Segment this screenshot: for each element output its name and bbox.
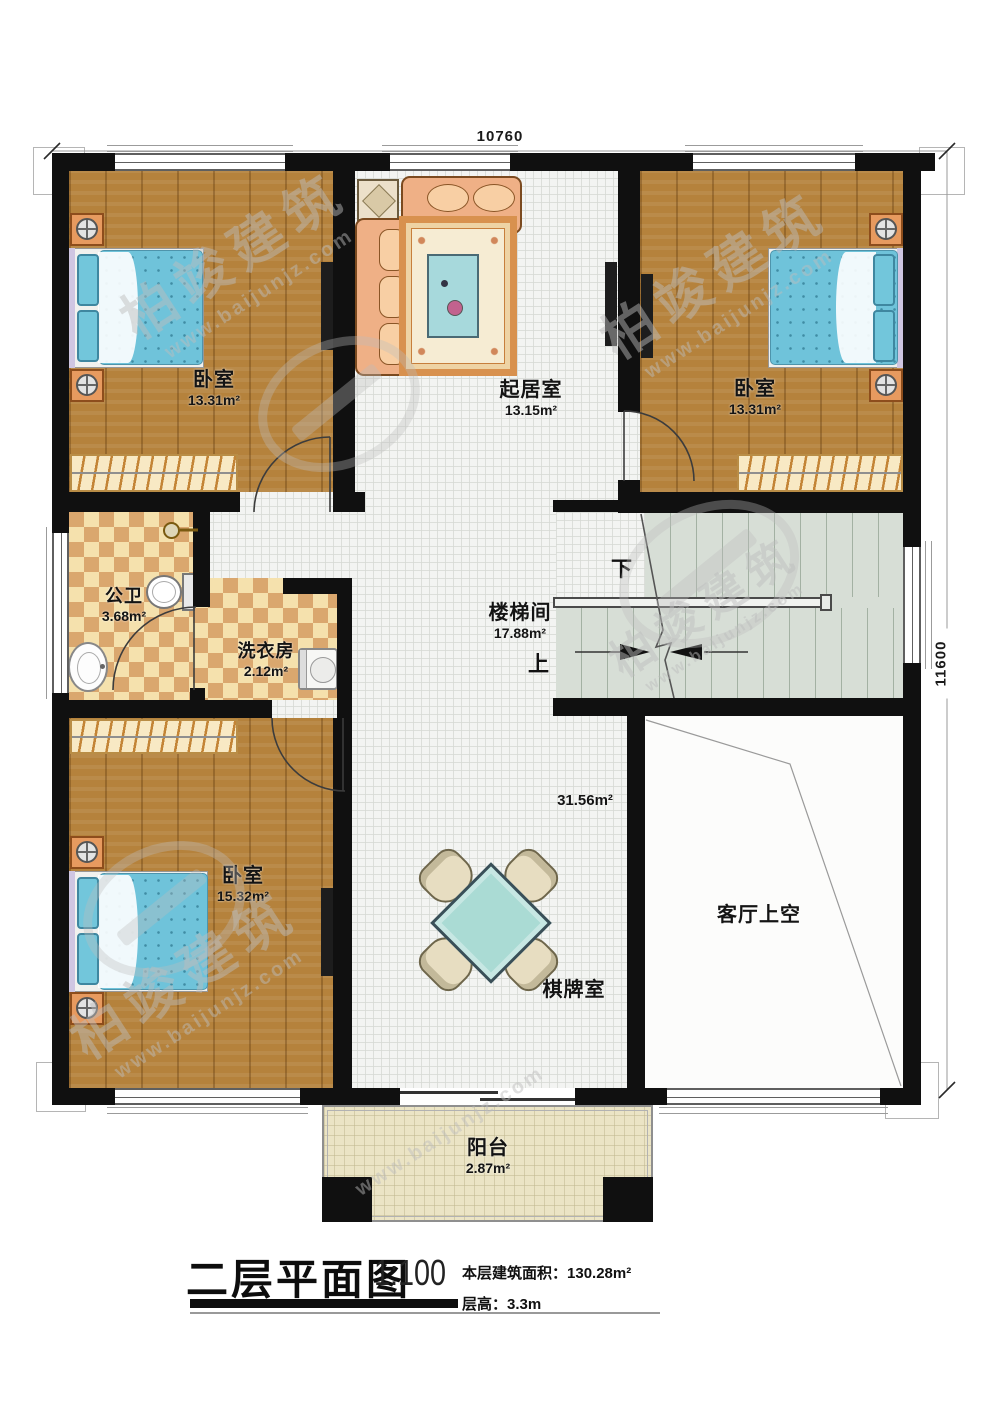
floor-area-value: 130.28m²: [567, 1265, 631, 1282]
room-label-game-room: 棋牌室: [514, 978, 634, 1002]
plant-stand-top: [362, 184, 396, 218]
table-flowers: [447, 300, 463, 316]
pillow: [77, 933, 99, 985]
pillow: [77, 310, 99, 362]
window-sill: [659, 1107, 888, 1114]
floor-plan-canvas: 卧室 13.31m² 起居室 13.15m² 卧室 13.31m² 公卫 3.6…: [0, 0, 1000, 1416]
wall: [333, 492, 365, 512]
stair-lower-flight: [556, 608, 903, 698]
room-name: 客厅上空: [699, 903, 819, 927]
lamp-icon: [875, 218, 897, 240]
room-area: 3.68m²: [64, 608, 184, 625]
room-name: 卧室: [154, 368, 274, 392]
floor-height-value: 3.3m: [507, 1296, 541, 1313]
window: [115, 153, 285, 171]
bed-blanket: [98, 252, 138, 363]
room-name: 卧室: [183, 864, 303, 888]
wall: [193, 512, 210, 607]
tv: [321, 262, 333, 350]
window: [903, 547, 921, 663]
pillow: [77, 877, 99, 929]
bed-blanket: [836, 252, 876, 363]
lamp-icon: [76, 374, 98, 396]
title-underline-bar: [190, 1299, 458, 1308]
room-label-bedroom-tl: 卧室 13.31m²: [154, 368, 274, 409]
window: [667, 1088, 880, 1105]
wall: [618, 170, 640, 412]
room-label-bedroom-tr: 卧室 13.31m²: [695, 377, 815, 418]
pillow: [873, 254, 895, 306]
window-sill: [925, 541, 932, 669]
game-room-area-label: 31.56m²: [525, 792, 645, 810]
wall: [69, 492, 240, 512]
room-name: 棋牌室: [514, 978, 634, 1002]
sink: [68, 642, 108, 692]
wall: [637, 492, 903, 513]
stair-upper-flight: [645, 512, 903, 597]
bed-headboard: [69, 871, 75, 992]
pillow: [77, 254, 99, 306]
tv: [321, 888, 333, 976]
tv: [641, 274, 653, 358]
sofa-cushion: [427, 184, 469, 212]
dimension-right: 11600: [933, 629, 950, 699]
dimension-top: 10760: [462, 128, 538, 145]
room-area: 2.12m²: [206, 663, 326, 680]
wall: [553, 500, 645, 512]
balcony-post: [322, 1177, 372, 1222]
window-sill: [382, 145, 518, 152]
faucet-icon: [100, 664, 105, 669]
room-area: 15.32m²: [183, 888, 303, 905]
wardrobe: [70, 454, 238, 492]
plant-stand: [357, 179, 399, 221]
room-area: 31.56m²: [525, 792, 645, 810]
lamp-icon: [76, 218, 98, 240]
sliding-door-panel: [480, 1098, 575, 1101]
sink-basin: [77, 652, 101, 684]
room-area: 13.31m²: [154, 392, 274, 409]
nightstand: [869, 213, 903, 246]
floor-area-note: 本层建筑面积：130.28m²: [462, 1262, 631, 1283]
pillow: [873, 310, 895, 362]
stair-handrail: [553, 597, 825, 608]
room-name: 楼梯间: [460, 601, 580, 625]
handrail-post: [820, 594, 832, 611]
room-name: 公卫: [64, 586, 184, 608]
room-area: 13.15m²: [471, 402, 591, 419]
wall: [553, 698, 903, 716]
title-underline-thin: [190, 1312, 660, 1314]
room-area: 2.87m²: [428, 1160, 548, 1177]
nightstand: [70, 369, 104, 402]
sofa-cushion: [473, 184, 515, 212]
coffee-table: [427, 254, 479, 338]
nightstand: [70, 836, 104, 869]
wardrobe: [70, 719, 238, 754]
room-label-bedroom-bl: 卧室 15.32m²: [183, 864, 303, 905]
floor-height-note: 层高：3.3m: [462, 1293, 541, 1314]
nightstand: [70, 992, 104, 1025]
shower-mixer-icon: [163, 522, 180, 539]
nightstand: [70, 213, 104, 246]
table-decor: [441, 280, 448, 287]
wall: [337, 594, 352, 718]
room-label-living: 起居室 13.15m²: [471, 378, 591, 419]
sliding-door-panel: [400, 1091, 498, 1094]
tv: [605, 262, 617, 346]
window-sill: [107, 145, 293, 152]
floor-area-label: 本层建筑面积：: [462, 1265, 567, 1282]
room-label-bath: 公卫 3.68m²: [64, 586, 184, 624]
room-name: 阳台: [428, 1136, 548, 1160]
window: [693, 153, 855, 171]
window-sill: [685, 145, 863, 152]
wall: [333, 718, 352, 1088]
room-area: 13.31m²: [695, 401, 815, 418]
drawing-scale: 1:100: [374, 1252, 446, 1294]
lamp-icon: [76, 997, 98, 1019]
wardrobe: [737, 454, 903, 492]
wall: [283, 578, 352, 594]
room-area: 17.88m²: [460, 625, 580, 642]
room-label-stairwell: 楼梯间 17.88m²: [460, 601, 580, 642]
room-label-void: 客厅上空: [699, 903, 819, 927]
window-sill: [107, 1107, 308, 1114]
window: [390, 153, 510, 171]
lamp-icon: [875, 374, 897, 396]
void-floor: [645, 716, 903, 1088]
room-name: 起居室: [471, 378, 591, 402]
room-name: 洗衣房: [206, 641, 326, 663]
wall: [52, 700, 272, 718]
nightstand: [869, 369, 903, 402]
balcony-post: [603, 1177, 653, 1222]
wall: [627, 716, 645, 1088]
bed-blanket: [98, 875, 138, 988]
room-name: 卧室: [695, 377, 815, 401]
stair-down-label: 下: [611, 553, 632, 583]
lamp-icon: [76, 841, 98, 863]
room-label-balcony: 阳台 2.87m²: [428, 1136, 548, 1177]
room-label-laundry: 洗衣房 2.12m²: [206, 641, 326, 679]
window: [115, 1088, 300, 1105]
stair-up-label: 上: [528, 648, 549, 678]
wall: [333, 170, 355, 512]
sliding-door: [400, 1088, 575, 1105]
bed-headboard: [69, 248, 75, 368]
floor-height-label: 层高：: [462, 1296, 507, 1313]
